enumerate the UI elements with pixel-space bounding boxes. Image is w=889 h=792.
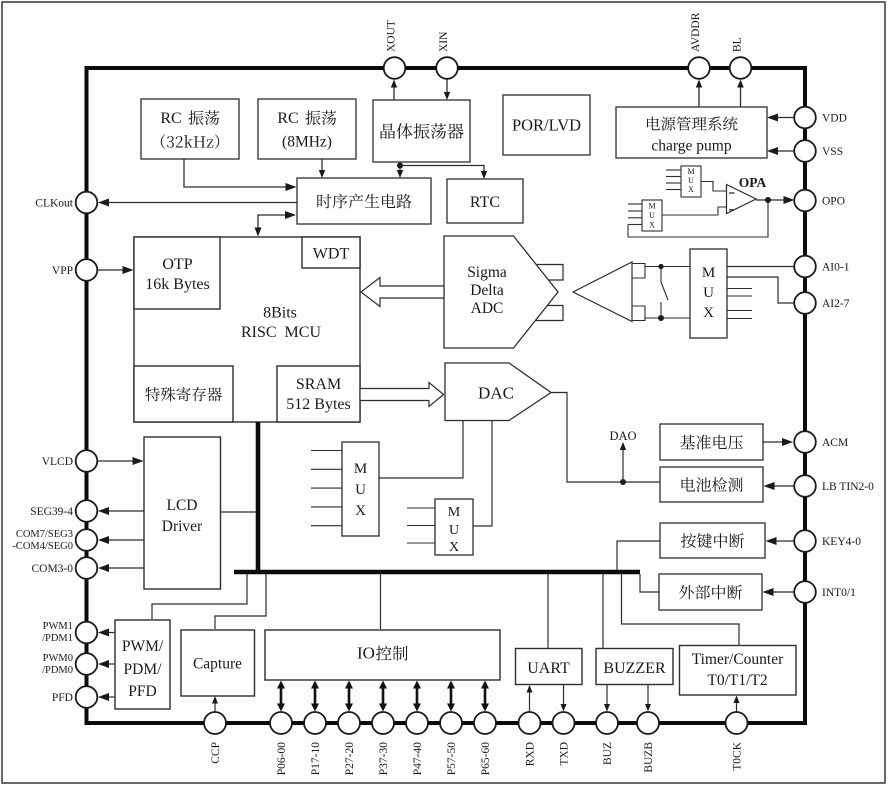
svg-text:T0CK: T0CK bbox=[732, 741, 744, 770]
svg-text:Delta: Delta bbox=[470, 282, 504, 299]
svg-text:charge pump: charge pump bbox=[651, 138, 731, 155]
svg-text:Driver: Driver bbox=[162, 518, 203, 535]
svg-text:Capture: Capture bbox=[193, 656, 242, 673]
svg-text:AVDDR: AVDDR bbox=[690, 12, 702, 52]
svg-text:M: M bbox=[354, 461, 367, 477]
svg-text:XOUT: XOUT bbox=[386, 20, 398, 52]
svg-text:P37-30: P37-30 bbox=[378, 742, 390, 775]
svg-text:UART: UART bbox=[527, 660, 570, 677]
svg-text:8Bits: 8Bits bbox=[263, 305, 297, 322]
svg-text:IO: IO bbox=[357, 644, 375, 663]
svg-text:PFD: PFD bbox=[128, 683, 156, 700]
svg-text:PDM/: PDM/ bbox=[124, 661, 163, 678]
svg-text:OPO: OPO bbox=[822, 196, 845, 208]
svg-text:RXD: RXD bbox=[525, 742, 537, 766]
svg-text:P65-60: P65-60 bbox=[480, 742, 492, 775]
svg-text:U: U bbox=[649, 211, 655, 220]
svg-text:AI2-7: AI2-7 bbox=[822, 298, 850, 310]
svg-text:LCD: LCD bbox=[167, 497, 198, 514]
svg-text:RISC MCU: RISC MCU bbox=[241, 324, 321, 341]
svg-text:M: M bbox=[687, 167, 694, 176]
svg-text:COM3-0: COM3-0 bbox=[31, 563, 73, 575]
svg-text:SEG39-4: SEG39-4 bbox=[30, 506, 73, 518]
svg-text:U: U bbox=[688, 176, 694, 185]
svg-text:BUZ: BUZ bbox=[602, 742, 614, 765]
svg-text:PWM/: PWM/ bbox=[122, 638, 164, 655]
svg-text:OPA: OPA bbox=[739, 175, 767, 190]
svg-text:WDT: WDT bbox=[313, 246, 350, 263]
svg-text:INT0/1: INT0/1 bbox=[822, 587, 856, 599]
svg-text:CCP: CCP bbox=[210, 742, 222, 764]
svg-text:PFD: PFD bbox=[52, 692, 73, 704]
svg-text:LB TIN2-0: LB TIN2-0 bbox=[822, 481, 874, 493]
svg-text:/PDM0: /PDM0 bbox=[42, 665, 73, 676]
svg-text:POR/LVD: POR/LVD bbox=[512, 116, 581, 135]
svg-text:VLCD: VLCD bbox=[42, 456, 73, 468]
svg-text:X: X bbox=[649, 221, 655, 230]
svg-text:T0/T1/T2: T0/T1/T2 bbox=[707, 672, 767, 689]
svg-text:OTP: OTP bbox=[162, 256, 192, 273]
svg-text:RC: RC bbox=[160, 110, 181, 127]
svg-text:U: U bbox=[449, 523, 459, 538]
svg-text:BL: BL bbox=[732, 37, 744, 52]
svg-text:16k Bytes: 16k Bytes bbox=[145, 276, 209, 293]
svg-text:SRAM: SRAM bbox=[296, 376, 341, 393]
svg-text:-COM4/SEG0: -COM4/SEG0 bbox=[12, 541, 73, 552]
svg-text:VDD: VDD bbox=[822, 113, 847, 125]
svg-text:(8MHz): (8MHz) bbox=[282, 134, 332, 151]
svg-text:U: U bbox=[703, 285, 714, 301]
svg-text:VSS: VSS bbox=[822, 146, 843, 158]
svg-text:BUZB: BUZB bbox=[643, 742, 655, 773]
svg-text:/PDM1: /PDM1 bbox=[42, 633, 73, 644]
svg-text:P06-00: P06-00 bbox=[276, 742, 288, 775]
svg-text:BUZZER: BUZZER bbox=[603, 660, 666, 677]
svg-text:TXD: TXD bbox=[559, 742, 571, 766]
svg-text:U: U bbox=[355, 482, 366, 498]
svg-text:P17-10: P17-10 bbox=[310, 742, 322, 775]
svg-text:PWM0: PWM0 bbox=[43, 653, 73, 664]
svg-text:PWM1: PWM1 bbox=[43, 621, 73, 632]
svg-text:X: X bbox=[703, 305, 714, 321]
svg-text:ACM: ACM bbox=[822, 437, 848, 449]
svg-text:RTC: RTC bbox=[470, 194, 500, 211]
svg-text:AI0-1: AI0-1 bbox=[822, 262, 850, 274]
svg-text:Timer/Counter: Timer/Counter bbox=[692, 651, 784, 668]
svg-text:DAC: DAC bbox=[478, 384, 514, 403]
svg-text:ADC: ADC bbox=[471, 300, 504, 317]
svg-text:P27-20: P27-20 bbox=[344, 742, 356, 775]
svg-text:CLKout: CLKout bbox=[35, 198, 74, 210]
svg-text:XIN: XIN bbox=[438, 31, 450, 52]
svg-text:DAO: DAO bbox=[609, 429, 636, 443]
svg-text:X: X bbox=[355, 503, 366, 519]
svg-text:X: X bbox=[449, 540, 459, 555]
svg-text:Sigma: Sigma bbox=[467, 264, 507, 281]
svg-text:M: M bbox=[702, 265, 715, 281]
svg-text:512 Bytes: 512 Bytes bbox=[286, 396, 350, 413]
svg-text:X: X bbox=[688, 185, 694, 194]
svg-text:VPP: VPP bbox=[52, 265, 73, 277]
svg-text:RC: RC bbox=[277, 110, 298, 127]
svg-text:COM7/SEG3: COM7/SEG3 bbox=[16, 529, 73, 540]
svg-text:P57-50: P57-50 bbox=[446, 742, 458, 775]
svg-text:KEY4-0: KEY4-0 bbox=[822, 536, 861, 548]
svg-text:M: M bbox=[448, 505, 461, 520]
svg-text:P47-40: P47-40 bbox=[412, 742, 424, 775]
svg-text:M: M bbox=[648, 202, 655, 211]
